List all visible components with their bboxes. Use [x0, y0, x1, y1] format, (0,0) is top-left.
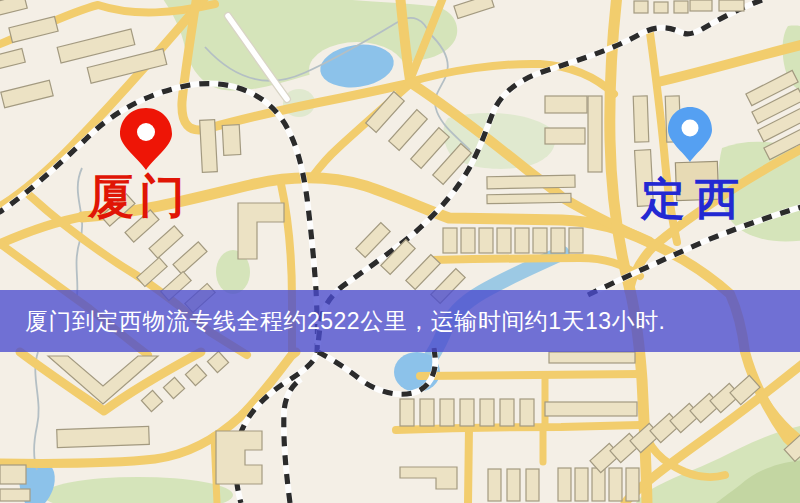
origin-city-label: 厦门: [88, 174, 190, 220]
map-canvas: [0, 0, 800, 503]
route-info-banner: 厦门到定西物流专线全程约2522公里，运输时间约1天13小时.: [0, 290, 800, 352]
route-info-text: 厦门到定西物流专线全程约2522公里，运输时间约1天13小时.: [0, 306, 665, 337]
destination-city-label: 定西: [641, 178, 749, 222]
map: 厦门 定西 厦门到定西物流专线全程约2522公里，运输时间约1天13小时.: [0, 0, 800, 503]
